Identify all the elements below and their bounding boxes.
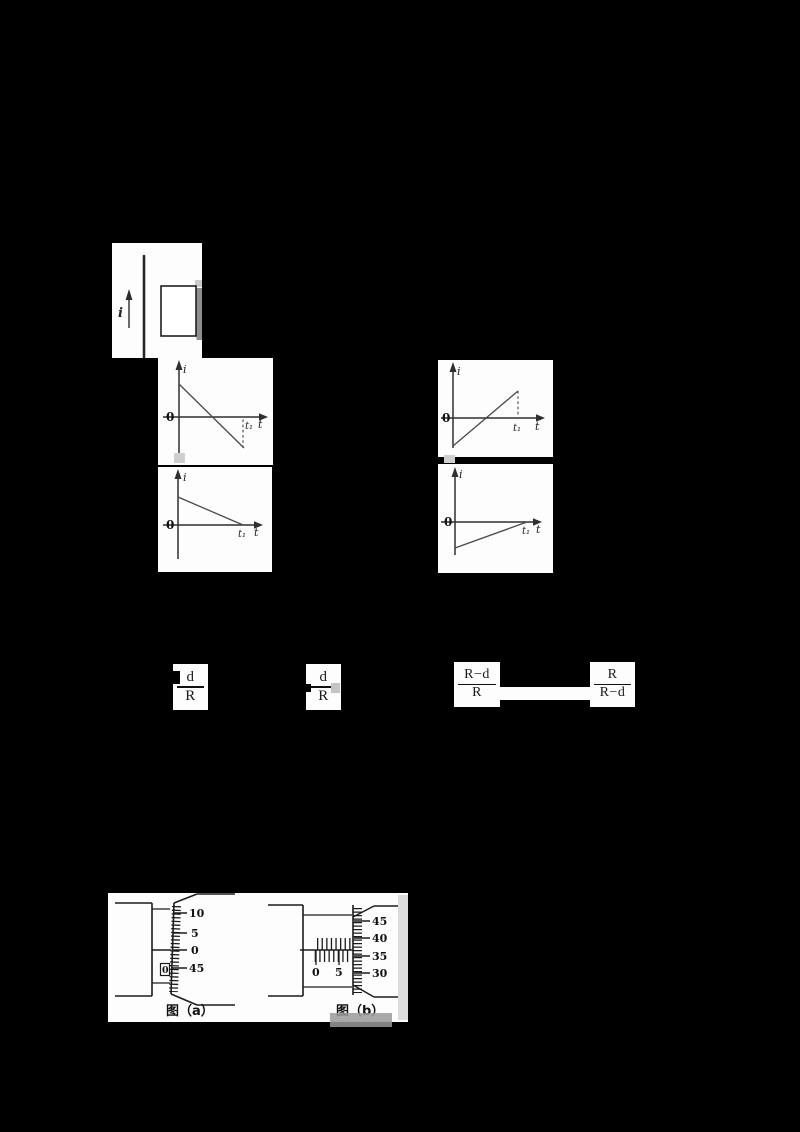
thimble-label: 40 bbox=[372, 932, 388, 945]
scan-artifact bbox=[331, 683, 340, 693]
caption-a: 图（a） bbox=[166, 1003, 214, 1019]
current-arrow-icon bbox=[126, 289, 133, 328]
main-scale-label: 0 bbox=[312, 966, 320, 979]
thimble-label: 45 bbox=[372, 915, 387, 928]
y-axis-label: i bbox=[459, 468, 463, 481]
thimble-label: 45 bbox=[189, 962, 204, 975]
scan-artifact bbox=[398, 895, 408, 1020]
thimble-label: 35 bbox=[372, 950, 387, 963]
scan-artifact bbox=[174, 453, 185, 463]
x-axis-label: t bbox=[535, 420, 540, 433]
scan-artifact bbox=[444, 455, 455, 463]
current-line bbox=[455, 522, 527, 548]
scan-artifact bbox=[330, 1013, 392, 1027]
fraction-numerator: d bbox=[187, 670, 195, 686]
y-axis-label: i bbox=[183, 363, 187, 376]
y-axis-label: i bbox=[183, 471, 187, 484]
x-axis-label: t bbox=[254, 526, 259, 539]
option-fraction-d: R R−d bbox=[590, 662, 635, 707]
coil bbox=[161, 280, 202, 340]
sleeve-edges bbox=[303, 915, 352, 987]
graph-option-b: i 0 t₁ t bbox=[438, 360, 553, 457]
x-axis-label: t bbox=[258, 418, 263, 431]
fraction-numerator: R bbox=[608, 668, 618, 683]
graph-option-d: i 0 t₁ t bbox=[438, 464, 553, 573]
t1-label: t₁ bbox=[245, 421, 253, 432]
scan-artifact bbox=[173, 671, 180, 684]
origin-label: 0 bbox=[166, 518, 174, 532]
fraction-denominator: R bbox=[185, 689, 196, 705]
t1-label: t₁ bbox=[522, 526, 530, 537]
axes bbox=[441, 467, 542, 555]
y-axis-arrow-icon bbox=[452, 467, 459, 477]
current-label: i bbox=[118, 306, 123, 321]
axes bbox=[163, 360, 268, 454]
fraction-denominator: R bbox=[472, 686, 482, 701]
current-line bbox=[178, 497, 243, 525]
micrometer-figure: 10 5 0 45 0 图（a） 0 5 45 4 bbox=[108, 893, 408, 1022]
axes bbox=[163, 469, 263, 559]
scan-artifact bbox=[306, 684, 311, 692]
sleeve-zero-label: 0 bbox=[162, 965, 169, 976]
thimble-label: 5 bbox=[191, 927, 199, 940]
fraction-numerator: d bbox=[320, 670, 328, 686]
main-scale-label: 5 bbox=[335, 966, 343, 979]
origin-label: 0 bbox=[442, 411, 450, 425]
top-jaw bbox=[174, 894, 235, 903]
graph-option-c: i 0 t₁ t bbox=[158, 467, 272, 572]
x-axis-label: t bbox=[536, 523, 541, 536]
thimble-label: 10 bbox=[189, 907, 205, 920]
fraction-numerator: R−d bbox=[464, 668, 490, 683]
y-axis-label: i bbox=[457, 365, 461, 378]
thimble-label: 30 bbox=[372, 967, 388, 980]
y-axis-arrow-icon bbox=[450, 362, 457, 372]
fraction-denominator: R−d bbox=[600, 686, 626, 701]
current-line bbox=[179, 384, 244, 448]
scanned-worksheet-page: i i 0 t₁ t bbox=[0, 0, 800, 1132]
thimble-label: 0 bbox=[191, 944, 199, 957]
y-axis-arrow-icon bbox=[175, 469, 182, 479]
micrometer-a bbox=[115, 894, 235, 1005]
wire-coil-diagram: i bbox=[112, 243, 202, 358]
coil-shadow bbox=[197, 288, 203, 340]
t1-label: t₁ bbox=[513, 423, 521, 434]
origin-label: 0 bbox=[444, 515, 452, 529]
graph-option-a: i 0 t₁ t bbox=[158, 358, 273, 465]
fraction-denominator: R bbox=[318, 689, 329, 705]
origin-label: 0 bbox=[166, 410, 174, 424]
t1-label: t₁ bbox=[238, 529, 246, 540]
option-fraction-c: R−d R bbox=[454, 662, 500, 707]
y-axis-arrow-icon bbox=[176, 360, 183, 370]
